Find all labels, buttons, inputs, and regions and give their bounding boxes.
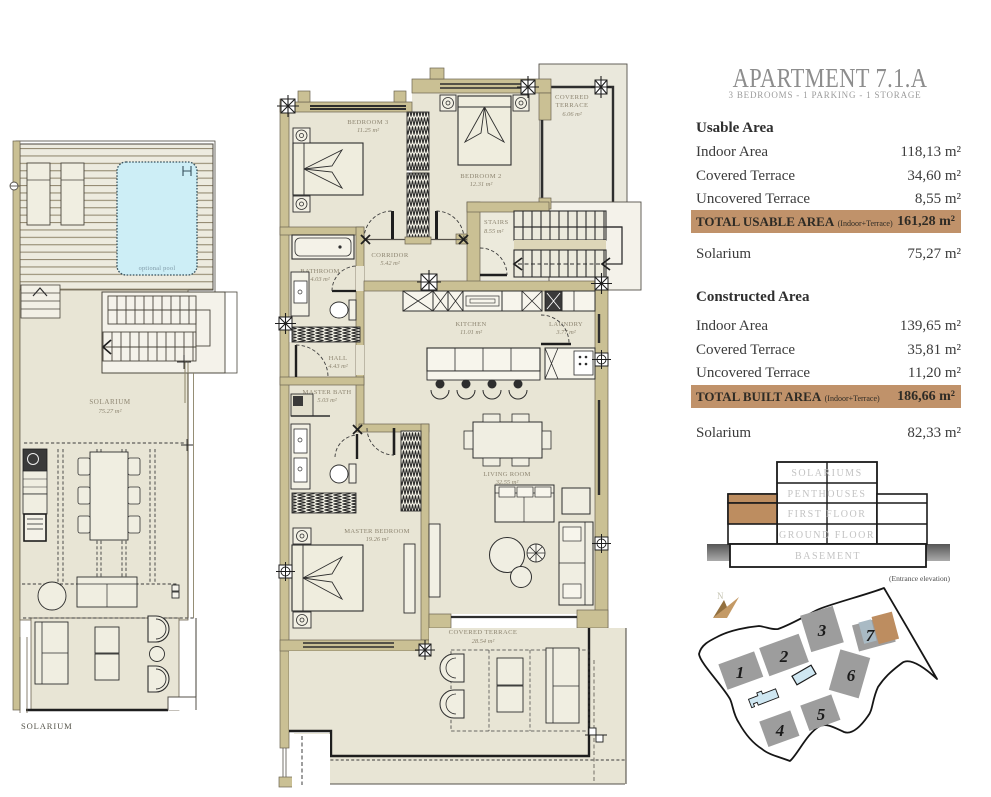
svg-text:4.03 m²: 4.03 m²: [310, 276, 329, 283]
svg-text:19.26 m²: 19.26 m²: [366, 536, 389, 543]
svg-text:4.43 m²: 4.43 m²: [328, 363, 347, 370]
svg-text:2: 2: [779, 647, 789, 666]
svg-text:optional pool: optional pool: [139, 265, 176, 272]
svg-text:HALL: HALL: [329, 355, 348, 362]
svg-text:BEDROOM 3: BEDROOM 3: [347, 119, 389, 126]
svg-text:N: N: [717, 591, 724, 601]
svg-text:8.55 m²: 8.55 m²: [484, 228, 503, 235]
svg-text:COVERED: COVERED: [555, 94, 589, 101]
svg-text:SOLARIUM: SOLARIUM: [89, 398, 131, 406]
svg-text:TERRACE: TERRACE: [556, 102, 589, 109]
svg-text:4: 4: [775, 721, 785, 740]
svg-text:SOLARIUM: SOLARIUM: [21, 721, 73, 731]
svg-text:LIVING ROOM: LIVING ROOM: [483, 471, 530, 478]
svg-text:28.54 m²: 28.54 m²: [472, 638, 495, 645]
svg-text:(Entrance elevation): (Entrance elevation): [889, 574, 951, 583]
svg-text:BASEMENT: BASEMENT: [795, 551, 861, 562]
svg-text:5.42 m²: 5.42 m²: [380, 260, 399, 267]
svg-text:KITCHEN: KITCHEN: [455, 321, 486, 328]
svg-text:CORRIDOR: CORRIDOR: [371, 252, 408, 259]
svg-text:FIRST FLOOR: FIRST FLOOR: [788, 509, 867, 520]
svg-text:11.25 m²: 11.25 m²: [357, 127, 379, 134]
svg-text:5.03 m²: 5.03 m²: [317, 397, 336, 404]
svg-text:LAUNDRY: LAUNDRY: [549, 321, 583, 328]
svg-text:11.01 m²: 11.01 m²: [460, 329, 482, 336]
svg-text:5: 5: [817, 705, 826, 724]
svg-text:6.06 m²: 6.06 m²: [562, 111, 581, 118]
svg-text:BEDROOM 2: BEDROOM 2: [460, 173, 502, 180]
svg-text:COVERED TERRACE: COVERED TERRACE: [449, 629, 518, 636]
svg-text:6: 6: [847, 666, 856, 685]
svg-text:SOLARIUMS: SOLARIUMS: [791, 468, 862, 479]
svg-text:PENTHOUSES: PENTHOUSES: [788, 489, 867, 500]
svg-text:12.31 m²: 12.31 m²: [470, 181, 493, 188]
svg-text:3: 3: [817, 621, 827, 640]
svg-text:1: 1: [736, 663, 745, 682]
svg-text:GROUND FLOOR: GROUND FLOOR: [779, 530, 875, 541]
svg-text:MASTER BEDROOM: MASTER BEDROOM: [344, 528, 410, 535]
svg-text:75.27 m²: 75.27 m²: [99, 408, 123, 415]
svg-text:STAIRS: STAIRS: [484, 219, 509, 226]
